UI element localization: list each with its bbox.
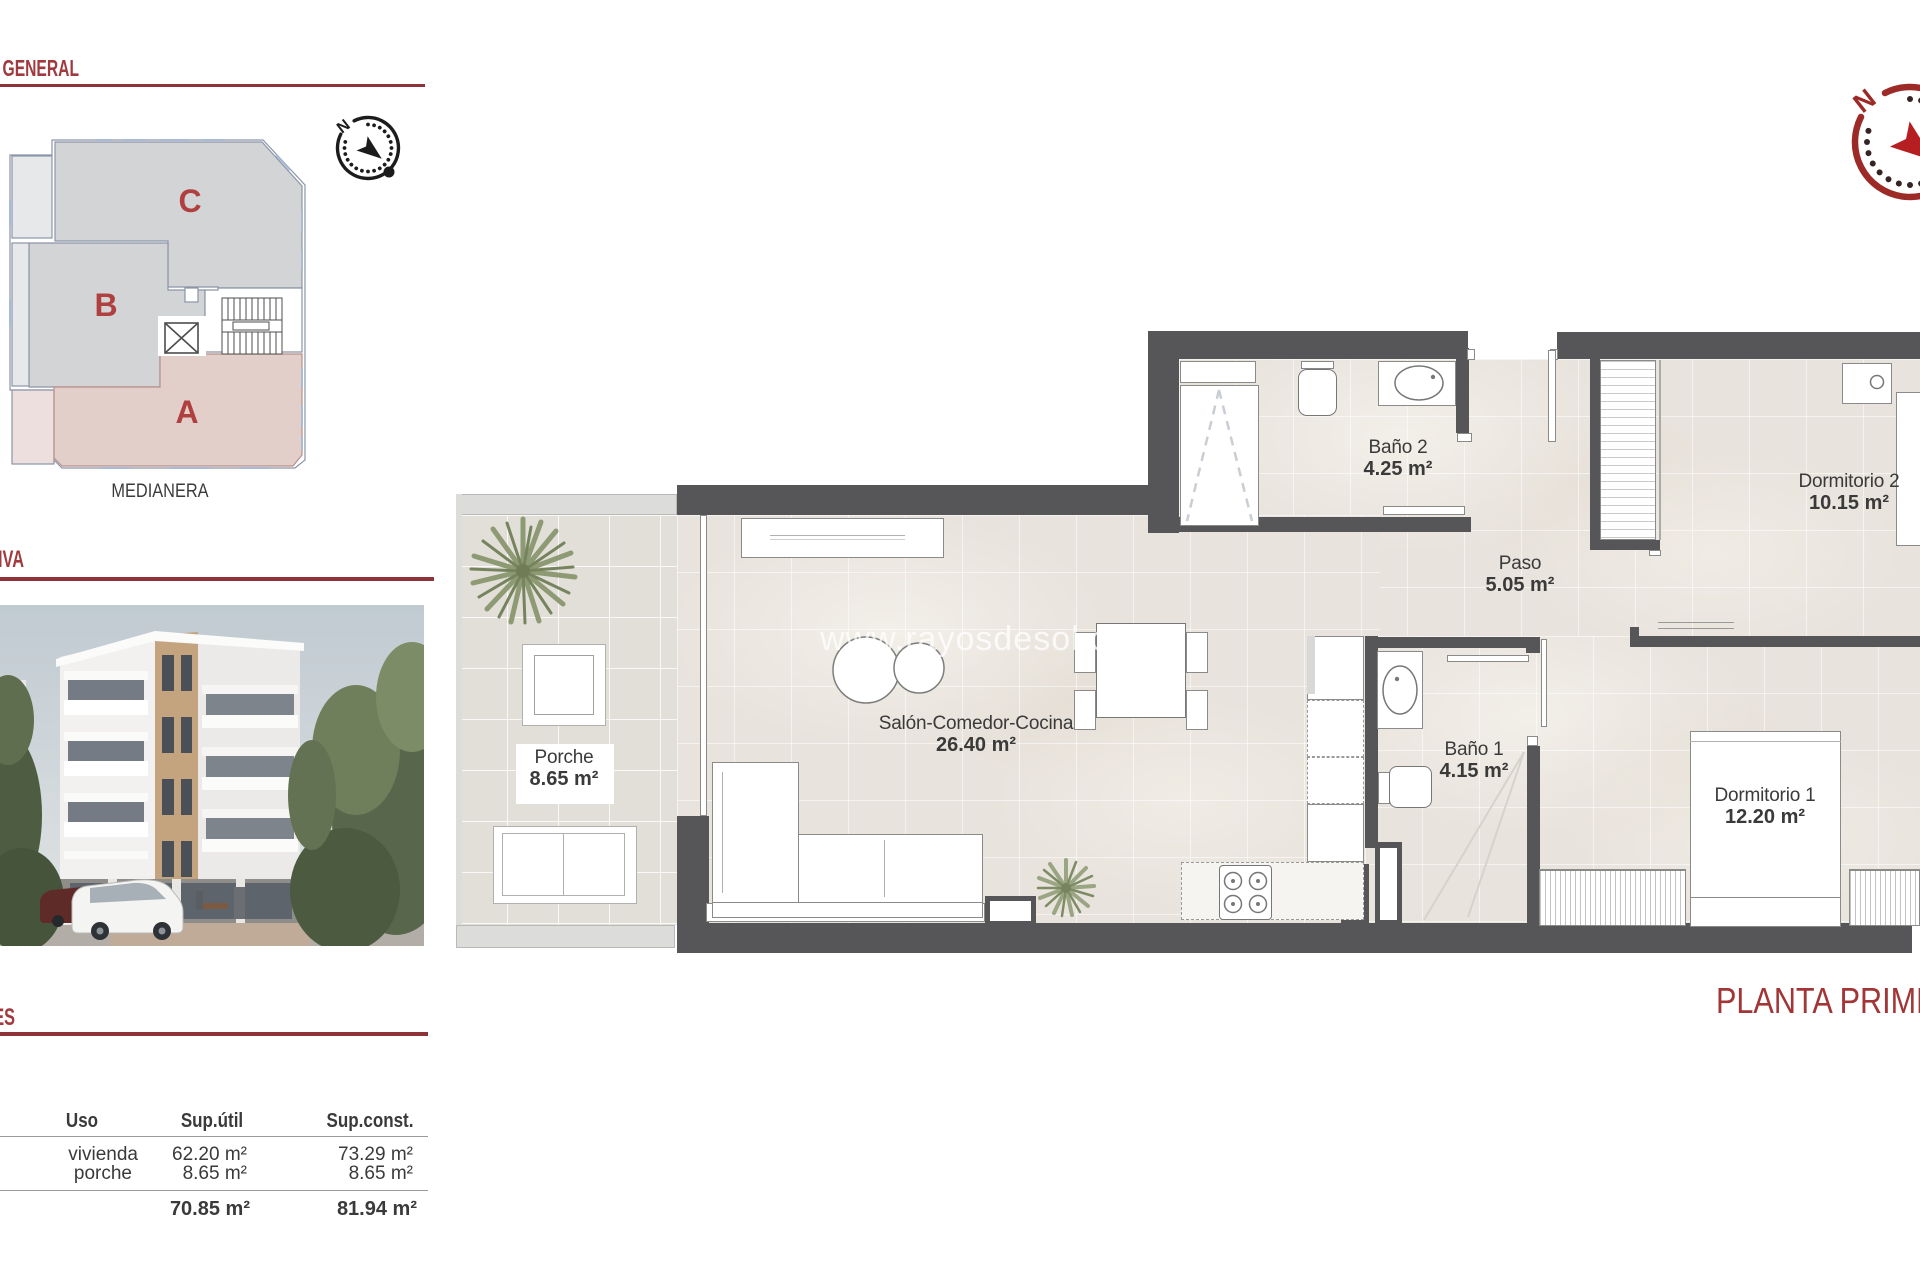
svg-text:A: A [175,394,198,430]
svg-text:N: N [334,117,354,138]
svg-text:C: C [178,183,201,219]
svg-text:N: N [1848,83,1882,119]
svg-text:B: B [94,287,117,323]
